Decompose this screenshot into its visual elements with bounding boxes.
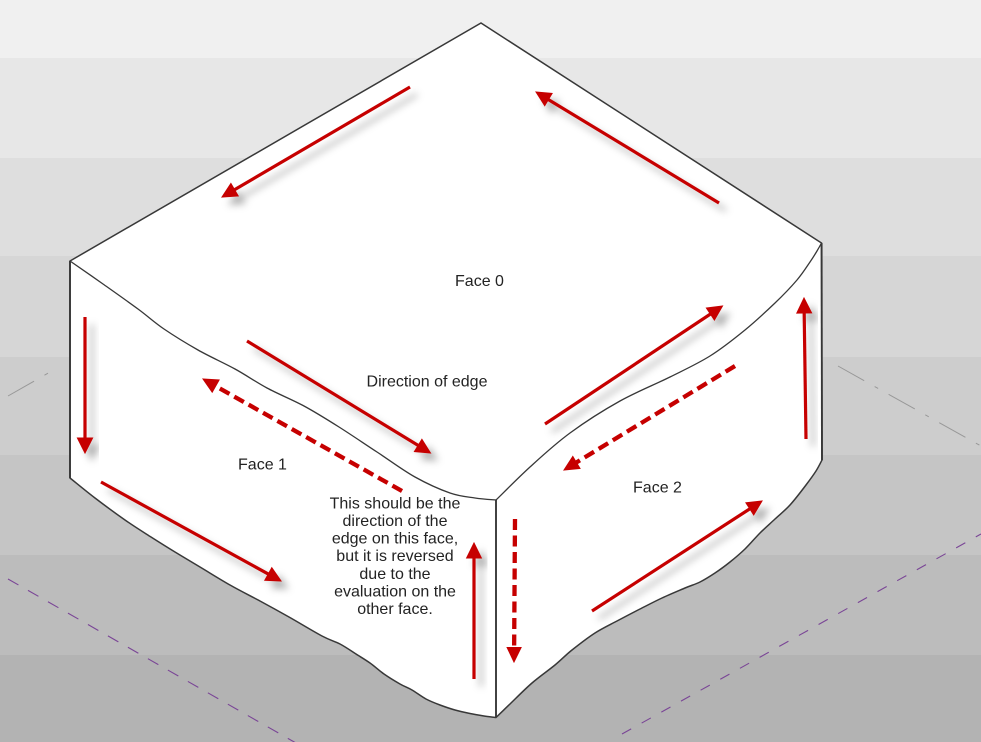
svg-text:due to the: due to the (359, 566, 430, 583)
svg-text:Face 1: Face 1 (238, 457, 287, 474)
svg-text:but it is reversed: but it is reversed (336, 548, 453, 565)
svg-text:other face.: other face. (357, 601, 433, 618)
svg-text:direction of the: direction of the (343, 513, 448, 530)
svg-text:Face 0: Face 0 (455, 273, 504, 290)
svg-text:Direction of edge: Direction of edge (367, 374, 488, 391)
svg-text:evaluation on the: evaluation on the (334, 583, 456, 600)
svg-text:edge on this face,: edge on this face, (332, 531, 458, 548)
svg-text:This should be the: This should be the (330, 495, 461, 512)
svg-text:Face 2: Face 2 (633, 480, 682, 497)
